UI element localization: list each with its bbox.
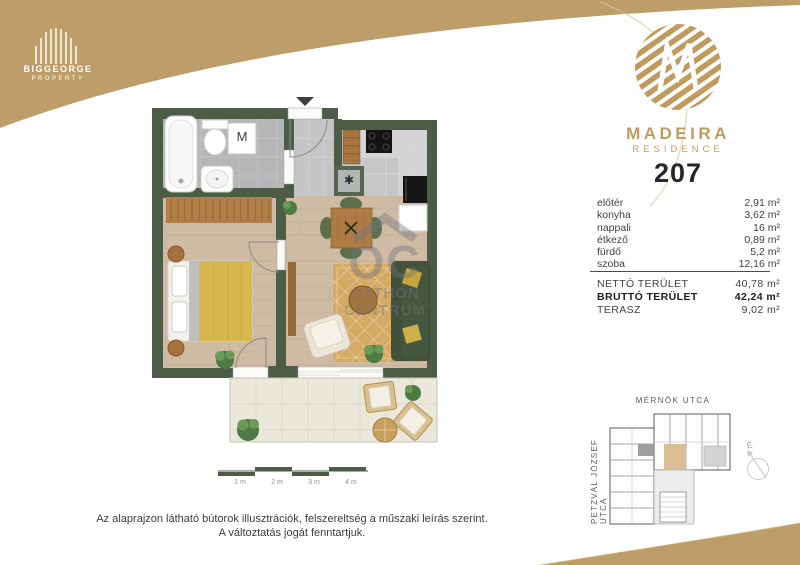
site-plan-highlighted-unit [664, 444, 686, 470]
scale-label-3m: 3 m [299, 479, 329, 486]
wardrobe [166, 197, 272, 223]
room-label: fürdő [597, 246, 621, 258]
totals-divider [590, 271, 770, 272]
scale-label-4m: 4 m [336, 479, 366, 486]
watermark-mark: OC [330, 241, 440, 285]
gold-swoosh-bottom [540, 523, 800, 565]
bathtub [165, 116, 197, 192]
dishwasher-symbol: ✱ [337, 173, 361, 187]
scale-label-1m: 1 m [225, 479, 255, 486]
pouf-top [168, 246, 184, 262]
room-value: 0,89 m² [744, 234, 780, 246]
biggeorge-logo: BIGGEORGE PROPERTY [8, 64, 108, 82]
total-label: NETTÓ TERÜLET [597, 278, 688, 291]
room-row: fürdő 5,2 m² [597, 246, 780, 258]
tv-board [288, 262, 296, 336]
fridge [403, 176, 427, 203]
room-label: előtér [597, 197, 623, 209]
room-value: 12,16 m² [739, 258, 780, 270]
watermark-line1: OTTHON [330, 285, 440, 302]
terrace-plant-top [405, 385, 421, 401]
room-label: szoba [597, 258, 625, 270]
total-row: TERASZ 9,02 m² [597, 304, 780, 317]
room-label: étkező [597, 234, 628, 246]
footer: Az alaprajzon látható bútorok illusztrác… [57, 512, 527, 540]
room-value: 3,62 m² [744, 209, 780, 221]
hall-plant [283, 201, 297, 215]
entry-door-marker [296, 97, 314, 106]
total-value: 42,24 m² [735, 291, 780, 304]
total-label: TERASZ [597, 304, 641, 317]
bathroom-sink [201, 166, 233, 192]
total-row-brutto: BRUTTÓ TERÜLET 42,24 m² [597, 291, 780, 304]
site-plan [610, 414, 730, 524]
cooktop [366, 130, 392, 153]
total-value: 9,02 m² [742, 304, 780, 317]
total-value: 40,78 m² [735, 278, 780, 291]
madeira-logo-text: MADEIRA RESIDENCE [583, 124, 773, 155]
terrace-table [373, 418, 397, 442]
room-row: előtér 2,91 m² [597, 197, 780, 209]
brochure-page: BIGGEORGE PROPERTY MADEIRA RESIDENCE 207… [0, 0, 800, 565]
footer-line1: Az alaprajzon látható bútorok illusztrác… [57, 512, 527, 526]
biggeorge-name: BIGGEORGE [8, 64, 108, 74]
kitchen-cabinet-wood [343, 130, 360, 164]
washing-machine-label: M [229, 129, 255, 144]
entry-floor [294, 119, 338, 196]
watermark-line2: CENTRUM [330, 302, 440, 319]
compass-icon [747, 450, 769, 480]
room-row: étkező 0,89 m² [597, 234, 780, 246]
unit-number: 207 [583, 158, 773, 189]
room-label: nappali [597, 222, 631, 234]
watermark: OC OTTHON CENTRUM [330, 213, 440, 319]
biggeorge-sub: PROPERTY [8, 76, 108, 82]
room-list: előtér 2,91 m² konyha 3,62 m² nappali 16… [597, 197, 780, 271]
terrace-plant-left [237, 419, 259, 441]
madeira-name: MADEIRA [583, 124, 773, 144]
bed [168, 261, 252, 341]
room-row: nappali 16 m² [597, 222, 780, 234]
total-label: BRUTTÓ TERÜLET [597, 291, 698, 304]
scale-bar [218, 467, 368, 476]
room-value: 16 m² [753, 222, 780, 234]
totals-list: NETTÓ TERÜLET 40,78 m² BRUTTÓ TERÜLET 42… [597, 278, 780, 317]
room-row: konyha 3,62 m² [597, 209, 780, 221]
room-label: konyha [597, 209, 631, 221]
toilet [202, 120, 228, 155]
room-row: szoba 12,16 m² [597, 258, 780, 270]
madeira-sub: RESIDENCE [583, 144, 773, 155]
terrace-chair-1 [363, 381, 397, 413]
scale-label-2m: 2 m [262, 479, 292, 486]
total-row: NETTÓ TERÜLET 40,78 m² [597, 278, 780, 291]
street-label-left: PETZVÁL JÓZSEF UTCA [590, 414, 608, 524]
street-label-top: MÉRNÖK UTCA [608, 396, 738, 405]
madeira-logo-icon [607, 1, 749, 132]
pouf-bottom [168, 340, 184, 356]
room-value: 5,2 m² [750, 246, 780, 258]
footer-line2: A változtatás jogát fenntartjuk. [57, 526, 527, 540]
room-value: 2,91 m² [744, 197, 780, 209]
